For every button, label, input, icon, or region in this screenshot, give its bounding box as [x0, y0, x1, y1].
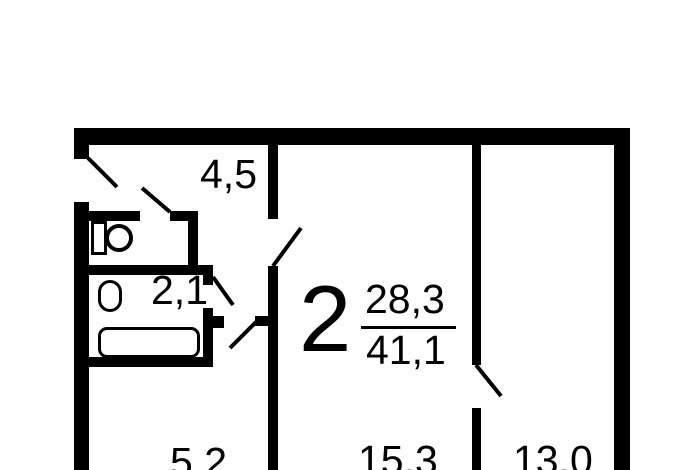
living-room-door-swing-icon	[273, 228, 301, 266]
bathroom-sink-icon	[98, 280, 122, 312]
kitchen-door-swing-icon	[230, 322, 256, 348]
room-label-kitchen: 5,2	[170, 442, 227, 470]
room-label-room1: 15,3	[358, 440, 438, 470]
toilet-bowl-icon	[105, 224, 133, 252]
room-label-hallway: 4,5	[200, 154, 257, 195]
bedroom-door-swing-icon	[476, 365, 501, 396]
apartment-rooms-count: 2	[299, 272, 351, 366]
living-area-value: 28,3	[365, 279, 445, 320]
room-label-room2: 13,0	[513, 440, 593, 470]
bathroom-door-swing-icon	[213, 277, 233, 305]
entrance-door-swing-icon	[88, 158, 117, 187]
floor-plan: 4,5 2,1 5,2 15,3 13,0 2 28,3 41,1	[0, 0, 700, 470]
wc-door-swing-icon	[142, 188, 170, 212]
room-label-bathroom: 2,1	[151, 270, 208, 311]
total-area-value: 41,1	[366, 330, 446, 371]
bathtub-icon	[98, 327, 200, 358]
